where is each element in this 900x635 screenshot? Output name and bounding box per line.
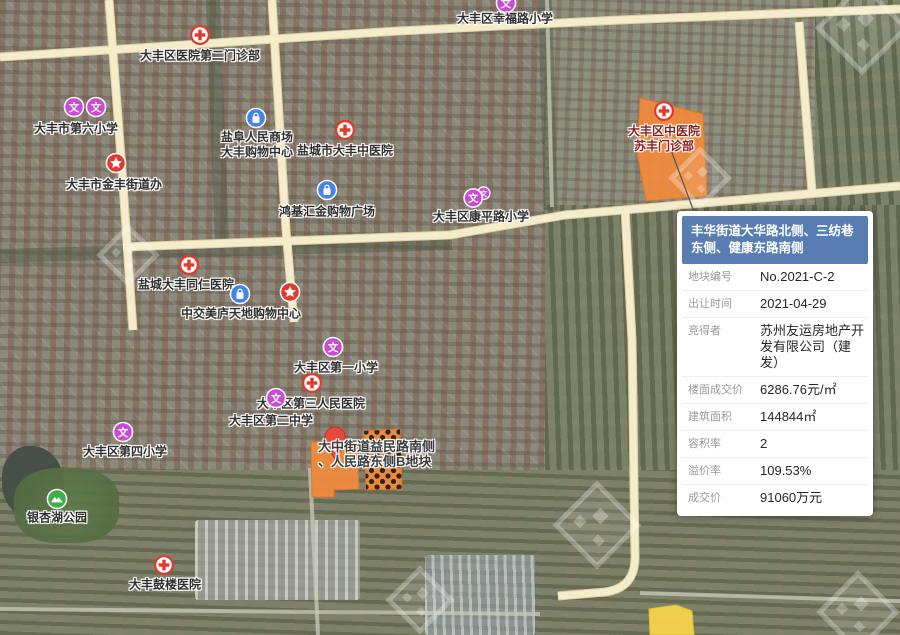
poi-label-school-no4-primary[interactable]: 大丰区第四小学 — [83, 445, 167, 460]
watermark — [556, 484, 638, 566]
popup-row-4: 建筑面积 144844㎡ — [682, 404, 868, 431]
popup-row-6: 溢价率 109.53% — [682, 458, 868, 485]
svg-text:文: 文 — [327, 341, 339, 354]
popup-row-label: 溢价率 — [688, 463, 760, 479]
hospital-cross-icon — [654, 101, 675, 122]
popup-row-label: 地块编号 — [688, 269, 760, 285]
hospital-cross-icon — [302, 373, 323, 394]
school-wen-icon: 文 — [323, 337, 344, 358]
popup-row-5: 容积率 2 — [682, 431, 868, 458]
school-wen-icon: 文 — [86, 97, 107, 118]
popup-row-label: 建筑面积 — [688, 409, 760, 425]
poi-label-hospital-gulou[interactable]: 大丰鼓楼医院 — [129, 578, 201, 593]
popup-title: 丰华街道大华路北侧、三纺巷东侧、健康东路南侧 — [682, 216, 868, 264]
poi-label-school-xingfulu[interactable]: 大丰区幸福路小学 — [457, 12, 553, 27]
poi-label-hospital-dafeng-no2-clinic[interactable]: 大丰区医院第二门诊部 — [140, 49, 260, 64]
shopping-bag-icon — [246, 108, 267, 129]
poi-school-no2-middle[interactable]: 文 — [266, 388, 287, 409]
poi-hospital-no3-people[interactable] — [302, 373, 323, 394]
school-wen-double-icon: 文文 — [463, 186, 492, 209]
poi-hospital-tongren[interactable] — [179, 255, 200, 276]
svg-text:文: 文 — [90, 101, 102, 114]
poi-gov-jinfeng-street[interactable] — [106, 153, 127, 174]
poi-label-poi-zhongjiao-meilu[interactable]: 中交美庐天地购物中心 — [181, 307, 301, 322]
popup-row-1: 出让时间 2021-04-29 — [682, 291, 868, 318]
poi-school-kangpinglu[interactable]: 文文 — [463, 186, 492, 209]
svg-text:文: 文 — [500, 0, 512, 10]
minor-road — [0, 609, 540, 614]
poi-label-school-no6[interactable]: 大丰市第六小学 — [34, 122, 118, 137]
popup-row-label: 容积率 — [688, 436, 760, 452]
poi-mall-yanfu[interactable] — [246, 108, 267, 129]
watermark — [100, 227, 157, 284]
poi-park-yinxinghu[interactable] — [47, 489, 68, 510]
poi-label-park-yinxinghu[interactable]: 银杏湖公园 — [27, 511, 87, 526]
popup-rows: 地块编号 No.2021-C-2 出让时间 2021-04-29 竞得者 苏州友… — [682, 264, 868, 511]
hospital-cross-icon — [154, 555, 175, 576]
popup-row-value: 109.53% — [760, 463, 864, 479]
poi-label-school-kangpinglu[interactable]: 大丰区康平路小学 — [433, 210, 529, 225]
park-mountain-icon — [47, 489, 68, 510]
poi-school-no4-primary[interactable]: 文 — [113, 422, 134, 443]
popup-row-0: 地块编号 No.2021-C-2 — [682, 264, 868, 291]
popup-row-value: No.2021-C-2 — [760, 269, 864, 285]
road — [272, 0, 294, 322]
hospital-cross-icon — [190, 25, 211, 46]
poi-hospital-tcm-sufeng[interactable] — [654, 101, 675, 122]
poi-school-no1-primary[interactable]: 文 — [323, 337, 344, 358]
svg-text:文: 文 — [117, 426, 129, 439]
poi-hospital-gulou[interactable] — [154, 555, 175, 576]
popup-row-label: 竞得者 — [688, 323, 760, 339]
poi-hospital-dafeng-no2-clinic[interactable] — [190, 25, 211, 46]
road — [0, 9, 900, 57]
poi-mall-zhongjiao-icon[interactable] — [230, 284, 251, 305]
popup-row-label: 出让时间 — [688, 296, 760, 312]
poi-label-hospital-tongren[interactable]: 盐城大丰同仁医院 — [138, 278, 234, 293]
school-wen-icon: 文 — [64, 97, 85, 118]
popup-row-value: 91060万元 — [760, 490, 864, 506]
school-wen-icon: 文 — [266, 388, 287, 409]
watermark — [820, 574, 896, 635]
tree-corridor — [213, 0, 222, 243]
poi-mall-hongjihuijin[interactable] — [317, 180, 338, 201]
poi-hospital-dafeng-tcm[interactable] — [335, 120, 356, 141]
government-star-icon — [106, 153, 127, 174]
parcel-info-popup: 丰华街道大华路北侧、三纺巷东侧、健康东路南侧 地块编号 No.2021-C-2 … — [677, 211, 873, 516]
parcel-yellow-south[interactable] — [649, 605, 694, 635]
popup-row-value: 144844㎡ — [760, 409, 864, 425]
popup-row-label: 楼面成交价 — [688, 382, 760, 398]
poi-label-hospital-tcm-sufeng[interactable]: 大丰区中医院苏丰门诊部 — [628, 124, 700, 154]
map-canvas[interactable]: 大丰区医院第二门诊部文大丰区幸福路小学文文大丰市第六小学大丰市金丰街道办盐阜人民… — [0, 0, 900, 635]
shopping-bag-icon — [317, 180, 338, 201]
popup-row-7: 成交价 91060万元 — [682, 485, 868, 511]
poi-school-no6[interactable]: 文 — [86, 97, 107, 118]
poi-label-school-no2-middle[interactable]: 大丰区第二中学 — [229, 414, 313, 429]
popup-row-value: 苏州友运房地产开发有限公司（建发） — [760, 323, 864, 371]
road — [799, 22, 812, 192]
parcel-b-label: 大中街道益民路南侧、人民路东侧B地块 — [318, 439, 435, 469]
svg-text:文: 文 — [270, 392, 282, 405]
poi-school-no6-icon-a[interactable]: 文 — [64, 97, 85, 118]
popup-row-2: 竞得者 苏州友运房地产开发有限公司（建发） — [682, 318, 868, 377]
svg-text:文: 文 — [468, 192, 479, 205]
poi-label-gov-jinfeng-street[interactable]: 大丰市金丰街道办 — [66, 178, 162, 193]
popup-row-label: 成交价 — [688, 490, 760, 506]
popup-row-3: 楼面成交价 6286.76元/㎡ — [682, 377, 868, 404]
government-star-icon — [280, 282, 301, 303]
poi-label-hospital-dafeng-tcm[interactable]: 盐城市大丰中医院 — [297, 144, 393, 159]
popup-row-value: 6286.76元/㎡ — [760, 382, 864, 398]
poi-poi-zhongjiao-meilu[interactable] — [280, 282, 301, 303]
poi-label-mall-yanfu[interactable]: 盐阜人民商场大丰购物中心 — [221, 130, 293, 160]
watermark — [389, 569, 451, 631]
svg-text:文: 文 — [68, 101, 80, 114]
shopping-bag-icon — [230, 284, 251, 305]
popup-row-value: 2 — [760, 436, 864, 452]
popup-row-value: 2021-04-29 — [760, 296, 864, 312]
hospital-cross-icon — [335, 120, 356, 141]
hospital-cross-icon — [179, 255, 200, 276]
school-wen-icon: 文 — [113, 422, 134, 443]
poi-label-mall-hongjihuijin[interactable]: 鸿基汇金购物广场 — [279, 205, 375, 220]
